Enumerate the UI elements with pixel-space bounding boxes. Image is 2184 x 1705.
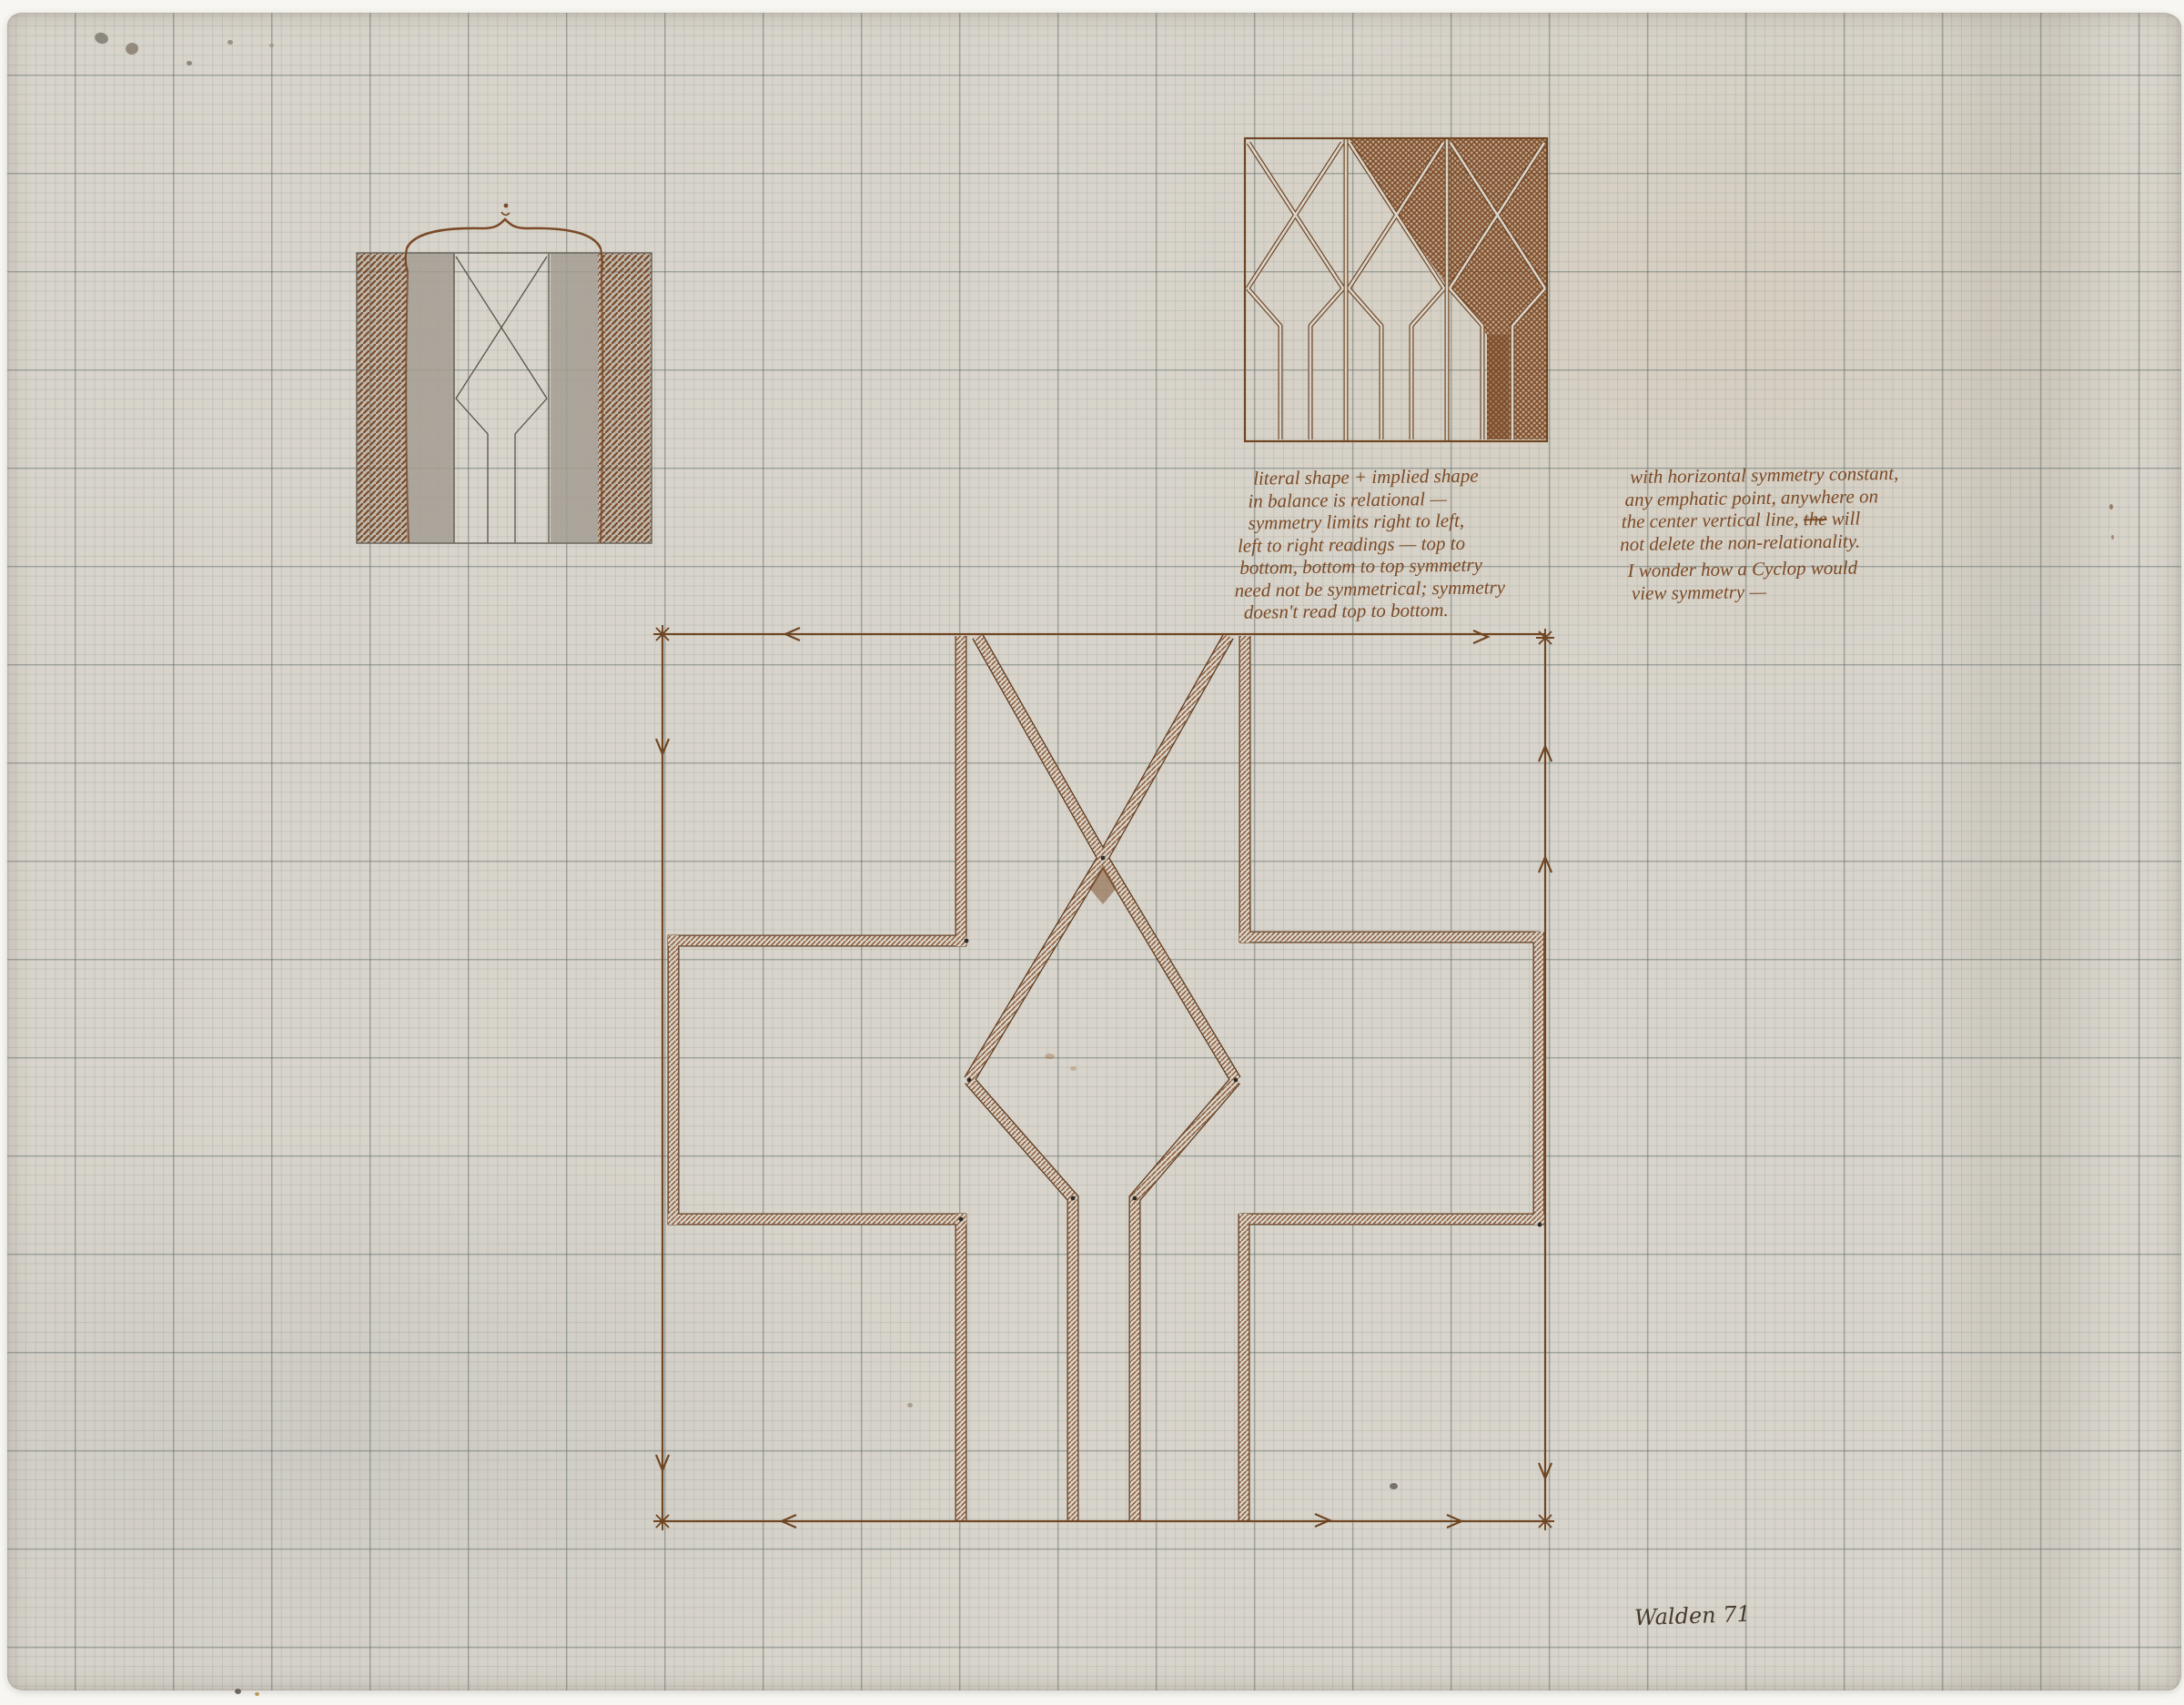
handwritten-line: left to right readings — top to — [1238, 531, 1505, 557]
pencil-band-study-sketch — [357, 204, 652, 543]
struck-word: the — [1804, 508, 1827, 530]
handwritten-line: doesn't read top to bottom. — [1244, 598, 1506, 623]
handwritten-note-right: with horizontal symmetry constant, any e… — [1630, 462, 1900, 604]
handwritten-line: in balance is relational — — [1248, 487, 1504, 512]
drawings-layer — [0, 0, 2184, 1705]
handwritten-line: the center vertical line, the will — [1622, 507, 1899, 533]
hatched-bands — [668, 636, 1544, 1520]
stain — [235, 1689, 241, 1694]
line-text: the center vertical line, — [1622, 508, 1804, 532]
handwritten-line: symmetry limits right to left, — [1249, 509, 1505, 534]
stain — [227, 40, 233, 45]
handwritten-line: with horizontal symmetry constant, — [1630, 462, 1898, 489]
pencil-motif-lines — [454, 253, 549, 543]
corner-star-marks — [653, 625, 1554, 1530]
ink-triple-motif-sketch — [1245, 138, 1547, 441]
stain — [187, 61, 192, 66]
stain — [1070, 1066, 1077, 1071]
handwritten-line: view symmetry — — [1632, 578, 1900, 604]
handwritten-line: literal shape + implied shape — [1253, 464, 1504, 489]
handwritten-line: need not be symmetrical; symmetry — [1234, 576, 1505, 601]
main-symmetry-diagram — [653, 625, 1554, 1530]
handwritten-note-center: literal shape + implied shape in balance… — [1248, 464, 1505, 623]
stain — [2109, 504, 2113, 509]
handwritten-line: not delete the non-relationality. — [1620, 529, 1899, 555]
stain — [1045, 1054, 1055, 1059]
stain — [907, 1403, 913, 1407]
artist-signature: Walden 71 — [1634, 1601, 1752, 1630]
direction-arrows — [656, 628, 1552, 1528]
stain — [2111, 535, 2114, 540]
scanned-sheet: literal shape + implied shape in balance… — [0, 0, 2184, 1705]
handwritten-line: bottom, bottom to top symmetry — [1239, 553, 1505, 579]
stain — [255, 1692, 259, 1696]
stain — [269, 44, 274, 47]
stain — [1390, 1483, 1398, 1489]
line-text: will — [1826, 508, 1860, 530]
outer-border — [662, 634, 1545, 1521]
